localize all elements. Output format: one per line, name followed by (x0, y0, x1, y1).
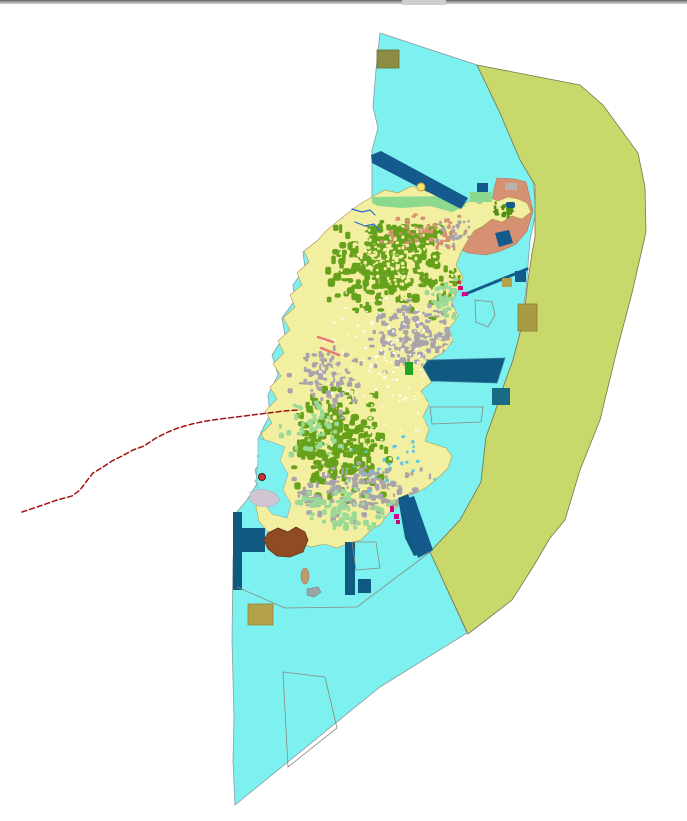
tan-square-bottom (248, 604, 273, 625)
ne-blue-blob (506, 202, 515, 208)
teal-square-se (492, 388, 510, 405)
tan-islet (301, 568, 309, 584)
blue-square-south (358, 579, 371, 593)
blue-square-east (515, 271, 526, 282)
topbar-notch (402, 0, 446, 5)
topbar-light-line (0, 2, 687, 4)
map-canvas[interactable] (0, 0, 687, 821)
red-point-marker (259, 474, 266, 481)
harbor-basin (423, 358, 505, 383)
map-svg (0, 0, 687, 821)
topbar-dark-line (0, 0, 687, 2)
red-speck-east (457, 281, 461, 284)
dock-horizontal-bar (233, 528, 265, 552)
magenta-speck-2 (394, 514, 399, 519)
green-rect-harbor (405, 362, 413, 375)
magenta-speck-3 (396, 520, 400, 524)
mint-square-ne (470, 192, 492, 202)
khaki-rect-east (518, 304, 537, 331)
blue-square-ne (477, 183, 488, 192)
dark-khaki-square-top (377, 50, 399, 68)
magenta-speck-east-2 (462, 292, 468, 296)
magenta-speck-east-1 (458, 286, 463, 290)
yellow-circle-marker (417, 183, 425, 191)
magenta-speck-1 (390, 506, 394, 512)
salmon-gray-patch (505, 183, 517, 190)
tan-square-east (502, 278, 512, 287)
